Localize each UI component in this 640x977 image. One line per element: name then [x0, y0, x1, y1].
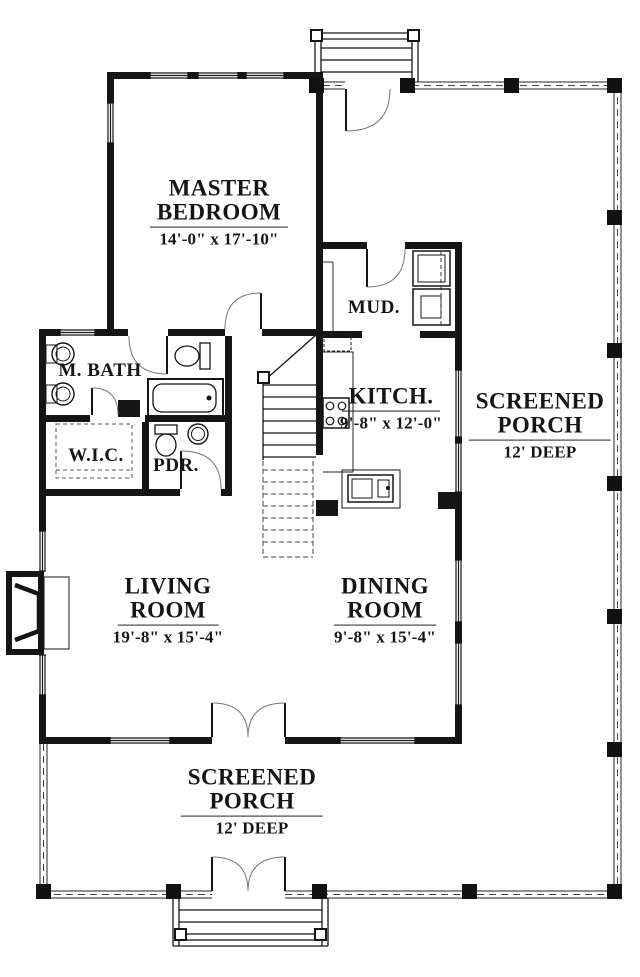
- room-label-living-room: LIVING ROOM 19'-8" x 15'-4": [113, 575, 224, 648]
- room-label-dining-room: DINING ROOM 9'-8" x 15'-4": [334, 575, 436, 648]
- room-label-m-bath: M. BATH: [58, 361, 141, 381]
- room-name: DINING ROOM: [334, 575, 436, 626]
- dryer-icon: [413, 289, 450, 325]
- steps-top: [311, 30, 419, 82]
- room-label-wic: W.I.C.: [68, 446, 124, 466]
- room-label-screened-porch-bottom: SCREENED PORCH 12' DEEP: [181, 766, 323, 839]
- bathtub-icon: [148, 379, 223, 417]
- washer-icon: [413, 251, 450, 286]
- room-name: W.I.C.: [68, 446, 124, 466]
- room-dims: 12' DEEP: [469, 442, 611, 462]
- stairs-above-dashed: [263, 461, 313, 557]
- room-label-kitchen: KITCH. 9'-8" x 12'-0": [340, 385, 442, 434]
- room-name: MUD.: [348, 298, 400, 318]
- room-label-master-bedroom: MASTER BEDROOM 14'-0" x 17'-10": [150, 177, 288, 250]
- pdr-sink-icon: [188, 424, 208, 444]
- room-dims: 19'-8" x 15'-4": [113, 627, 224, 647]
- room-name: M. BATH: [58, 361, 141, 381]
- room-name: MASTER BEDROOM: [150, 177, 288, 228]
- porch-posts: [36, 78, 622, 899]
- room-label-screened-porch-right: SCREENED PORCH 12' DEEP: [469, 390, 611, 463]
- room-dims: 9'-8" x 15'-4": [334, 627, 436, 647]
- room-name: KITCH.: [342, 385, 441, 412]
- fireplace-icon: [6, 571, 69, 655]
- room-label-pdr: PDR.: [153, 456, 199, 476]
- room-name: SCREENED PORCH: [181, 766, 323, 817]
- room-name: SCREENED PORCH: [469, 390, 611, 441]
- mud-bench-line: [323, 251, 441, 331]
- bath-toilet-icon: [175, 343, 210, 369]
- staircase: [258, 335, 316, 557]
- room-name: PDR.: [153, 456, 199, 476]
- room-label-mud: MUD.: [348, 298, 400, 318]
- pdr-toilet-icon: [155, 425, 177, 456]
- room-dims: 12' DEEP: [181, 818, 323, 838]
- steps-bottom: [173, 898, 328, 946]
- floor-plan-page: MASTER BEDROOM 14'-0" x 17'-10" M. BATH …: [0, 0, 640, 977]
- room-name: LIVING ROOM: [118, 575, 219, 626]
- island-sink-icon: [342, 470, 400, 508]
- room-dims: 14'-0" x 17'-10": [150, 229, 288, 249]
- room-dims: 9'-8" x 12'-0": [340, 413, 442, 433]
